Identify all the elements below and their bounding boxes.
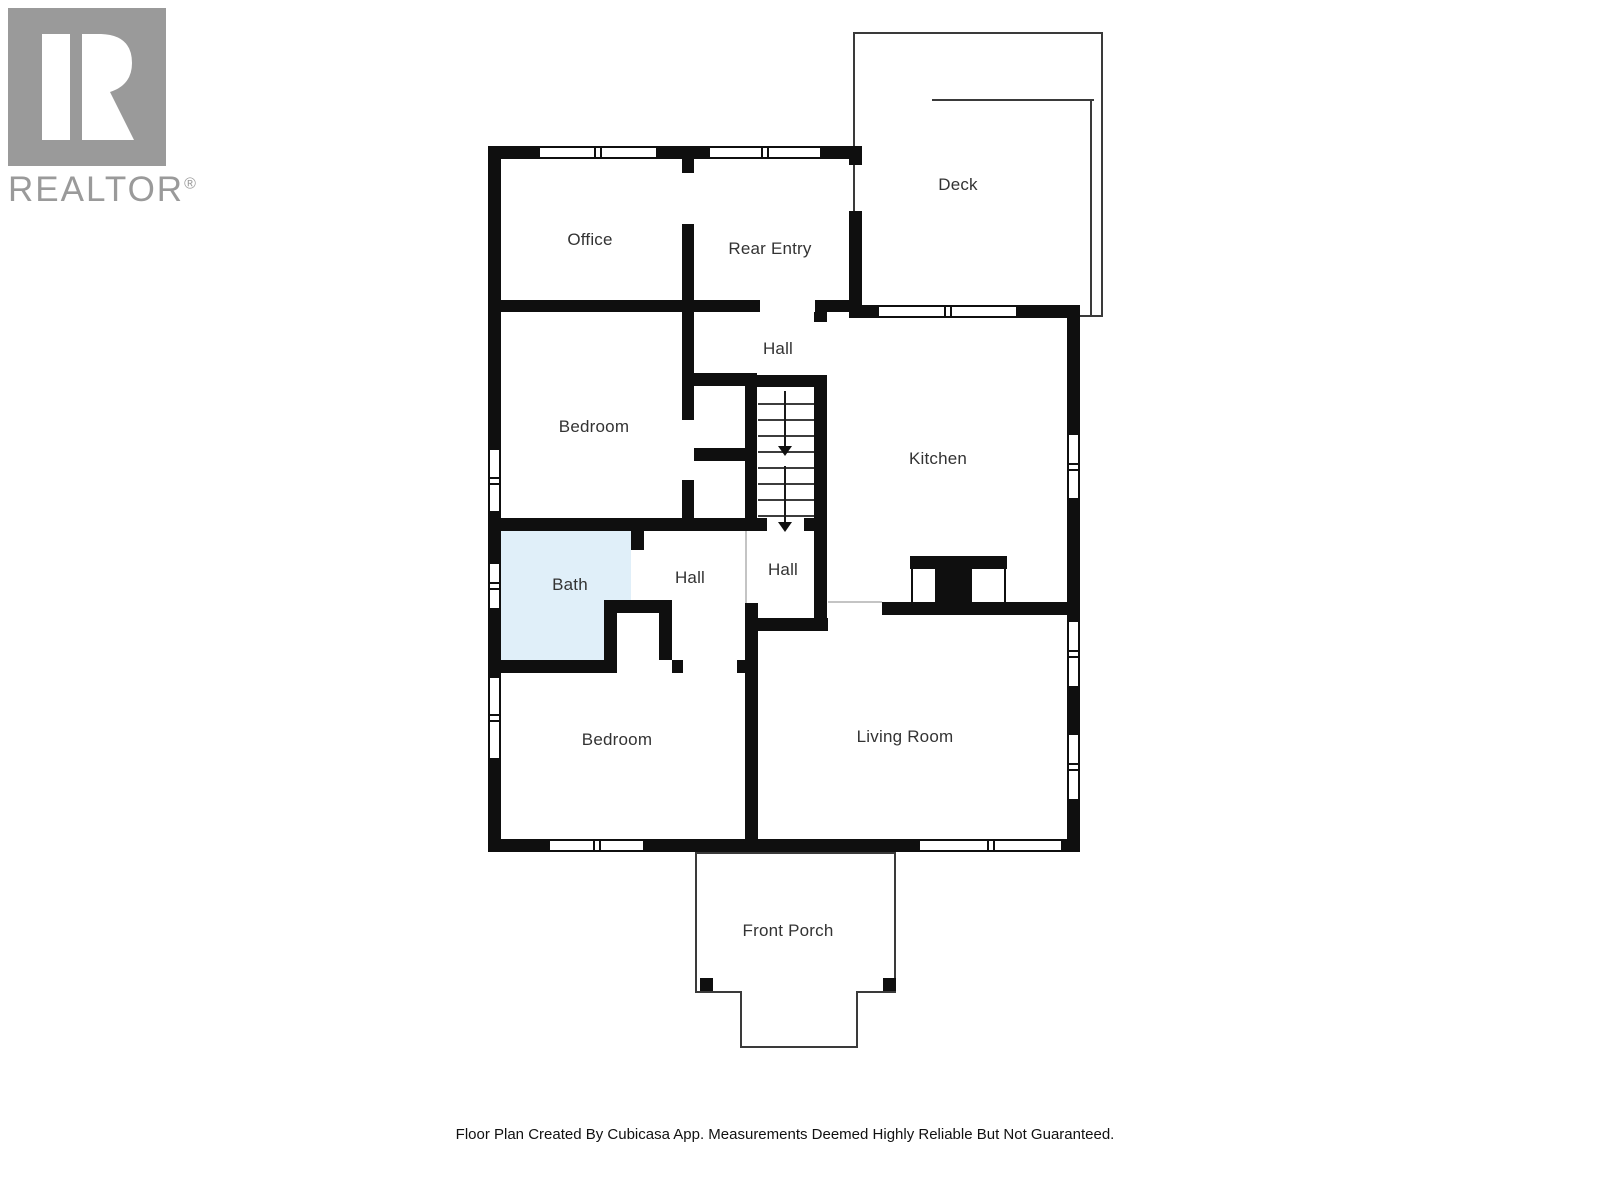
chimney-top [910,556,1007,569]
stair-tread [758,435,814,437]
wall-segment [745,603,758,852]
deck-railing [1090,99,1092,317]
logo-brand-text: REALTOR [8,170,184,209]
stair-tread [758,403,814,405]
stair-down-arrow [784,466,786,522]
footer-disclaimer-text: Floor Plan Created By Cubicasa App. Meas… [0,1126,1570,1143]
wall-segment [682,480,694,518]
room-label-hall-south: Hall [768,560,798,580]
room-label-bath: Bath [552,575,588,595]
chimney-cell-line [1004,569,1006,602]
wall-segment [682,159,694,173]
porch-step-opening [742,989,856,995]
wall-segment [682,312,694,420]
room-label-kitchen: Kitchen [909,449,967,469]
window [918,839,1063,852]
logo-wordmark: REALTOR® [8,170,238,210]
porch-post [700,978,713,991]
wall-segment [631,518,644,550]
room-label-deck: Deck [938,175,978,195]
wall-segment [745,373,757,531]
wall-segment [672,660,683,673]
closet-nook-floor [617,613,659,673]
window [708,146,822,159]
closet-nook-wall [604,600,672,613]
window [488,448,501,513]
open-boundary-line [745,531,747,603]
realtor-logo-icon [8,8,166,166]
chimney-flue [935,569,972,602]
stair-tread [758,467,814,469]
stair-down-arrowhead [778,522,792,532]
window [548,839,645,852]
room-label-bedroom-1: Bedroom [559,417,629,437]
window [1067,433,1080,500]
stair-stub [757,518,767,531]
closet-nook-wall [604,613,617,673]
porch-step-outline [740,991,742,1048]
stair-stub [804,518,814,531]
window [877,305,1018,318]
room-label-front-porch: Front Porch [742,921,833,941]
stair-tread [758,515,814,517]
registered-mark: ® [184,175,198,192]
window [1067,620,1080,688]
room-label-hall-mid: Hall [675,568,705,588]
room-label-hall-upper: Hall [763,339,793,359]
wall-segment [488,300,760,312]
wall-segment [682,224,694,312]
floorplan-page: REALTOR® [0,0,1600,1200]
room-label-office: Office [567,230,612,250]
wall-segment [488,518,757,531]
wall-segment [745,618,828,631]
wall-segment [814,312,827,322]
stair-down-arrowhead [778,446,792,456]
room-label-bedroom-2: Bedroom [582,730,652,750]
wall-segment [815,300,862,312]
wall-segment [882,602,1080,615]
closet-nook-wall [659,613,672,660]
room-label-living-room: Living Room [857,727,954,747]
wall-segment [849,146,862,165]
realtor-r-icon [8,8,166,166]
porch-step-outline [740,1046,858,1048]
deck-railing [932,99,1094,101]
chimney-cell-line [911,569,913,602]
porch-post [883,978,896,991]
window [488,562,501,610]
window [538,146,658,159]
wall-segment [757,375,827,387]
stair-tread [758,419,814,421]
wall-segment [814,377,827,630]
stair-tread [758,499,814,501]
open-boundary-line [828,601,882,603]
porch-step-outline [856,991,858,1048]
wall-segment [488,660,604,673]
window [1067,733,1080,801]
window [488,676,501,760]
stair-down-arrow [784,391,786,446]
stair-tread [758,483,814,485]
room-label-rear-entry: Rear Entry [728,239,811,259]
